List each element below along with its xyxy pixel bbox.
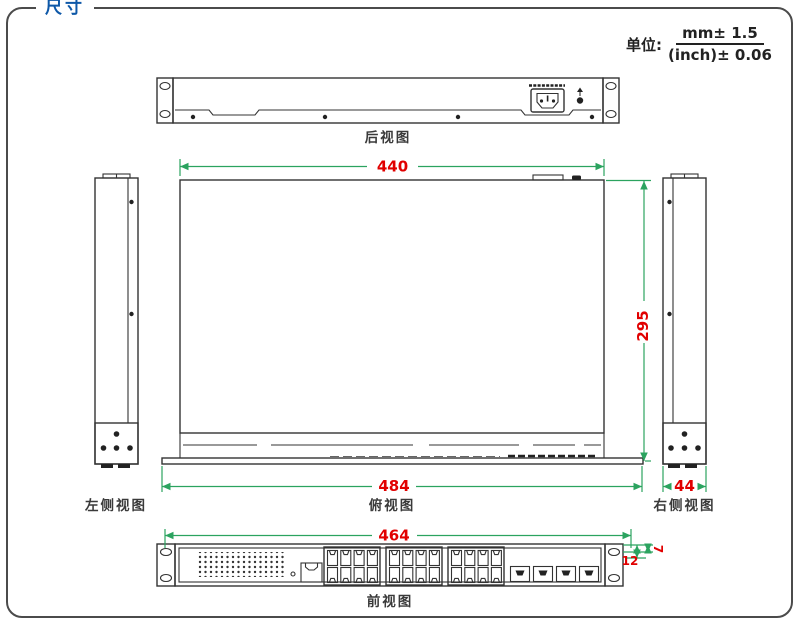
- unit-tolerance-fraction: mm± 1.5 (inch)± 0.06: [668, 24, 772, 64]
- dim-484-text: 484: [378, 477, 409, 495]
- front-right-ear: [605, 544, 623, 586]
- led-indicator-matrix: [198, 552, 286, 577]
- left-side-screw-1: [129, 200, 133, 204]
- sfp-ports: [511, 567, 599, 582]
- unit-note: 单位: mm± 1.5 (inch)± 0.06: [626, 24, 772, 64]
- rear-right-ear: [603, 78, 619, 123]
- ac-power-inlet: [531, 89, 564, 112]
- right-side-foot-1: [668, 464, 680, 468]
- technical-drawing: 后视图 左侧视图: [0, 0, 800, 622]
- rear-right-ear-hole-bottom: [606, 111, 616, 118]
- dimension-484: 484: [162, 466, 642, 495]
- ground-screw-icon: [577, 88, 583, 104]
- left-side-screw-2: [129, 312, 133, 316]
- top-view-power-inlet-edge: [533, 175, 563, 180]
- left-side-foot-1: [101, 464, 113, 468]
- right-side-view-label: 右侧视图: [654, 497, 716, 514]
- left-side-view: 左侧视图: [84, 174, 147, 514]
- rear-view: 后视图: [157, 78, 619, 146]
- rear-screw-2: [323, 115, 327, 119]
- rear-left-ear-hole-top: [160, 83, 170, 90]
- right-side-screw-1: [667, 200, 671, 204]
- front-view: 前视图: [157, 544, 623, 610]
- unit-label: 单位:: [626, 34, 662, 55]
- dim-440-text: 440: [377, 158, 408, 176]
- dimension-464: 464: [165, 527, 631, 549]
- dim-464-text: 464: [378, 527, 409, 545]
- top-view-mounting-flange: [162, 458, 643, 464]
- dim-7-text: 7: [651, 545, 665, 553]
- unit-mm-tolerance: mm± 1.5: [676, 24, 764, 45]
- rear-left-ear: [157, 78, 173, 123]
- dimension-44: 44: [663, 466, 706, 495]
- rear-view-label: 后视图: [365, 129, 412, 146]
- dim-295-text: 295: [634, 310, 652, 341]
- dimension-440: 440: [180, 158, 604, 177]
- right-side-body: [663, 178, 706, 464]
- dim-44-text: 44: [674, 477, 695, 495]
- rear-screw-1: [191, 115, 195, 119]
- top-view-body: [180, 180, 604, 433]
- right-side-view: 右侧视图: [654, 174, 716, 514]
- front-left-ear: [157, 544, 175, 586]
- reset-button: [291, 572, 295, 576]
- dim-12-text: 12: [622, 554, 639, 568]
- top-view: 俯视图: [162, 175, 643, 514]
- left-side-foot-2: [118, 464, 130, 468]
- unit-inch-tolerance: (inch)± 0.06: [668, 45, 772, 64]
- right-side-screw-2: [667, 312, 671, 316]
- rear-screw-4: [590, 115, 594, 119]
- rear-screw-3: [456, 115, 460, 119]
- rj45-ports: [328, 551, 502, 583]
- left-side-front-block: [95, 423, 138, 464]
- right-side-foot-2: [685, 464, 697, 468]
- front-view-label: 前视图: [367, 593, 414, 610]
- right-side-front-block: [663, 423, 706, 464]
- rear-right-ear-hole-top: [606, 83, 616, 90]
- left-side-view-label: 左侧视图: [84, 497, 147, 514]
- console-port: [301, 563, 322, 582]
- top-view-label: 俯视图: [369, 497, 416, 514]
- top-view-ground-screw: [572, 176, 581, 181]
- dimension-ear-offsets: 7 12: [622, 545, 665, 568]
- page-title: 尺寸: [36, 0, 94, 16]
- rear-left-ear-hole-bottom: [160, 111, 170, 118]
- dimension-drawing-page: 尺寸 单位: mm± 1.5 (inch)± 0.06: [0, 0, 800, 622]
- dimension-295: 295: [606, 181, 652, 462]
- left-side-body: [95, 178, 138, 464]
